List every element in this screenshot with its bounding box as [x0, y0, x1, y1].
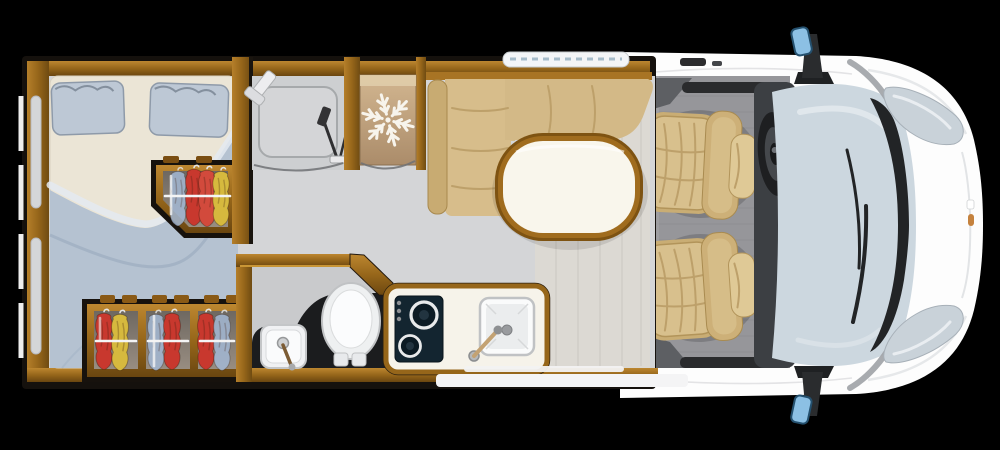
motorhome-floorplan — [0, 0, 1000, 450]
burner-small-center — [406, 342, 414, 350]
floorplan-canvas — [0, 0, 1000, 450]
dinette-top-trim — [426, 72, 652, 80]
roof-mount-icon — [680, 58, 706, 66]
washbasin-icon — [261, 325, 306, 371]
hinge-tab — [174, 295, 189, 303]
garment-red — [96, 309, 113, 369]
wall-divider — [232, 57, 251, 244]
hob-knobs — [397, 301, 401, 321]
hinge-tab — [100, 295, 115, 303]
fridge-side-panel — [416, 57, 426, 170]
amber-side-marker-icon — [968, 214, 974, 226]
pillow-left — [51, 81, 125, 135]
sink-icon — [480, 298, 534, 355]
fridge-top-band — [360, 75, 416, 86]
garment-red — [164, 309, 181, 369]
hinge-tab — [152, 295, 167, 303]
wall-shower-fridge — [344, 57, 360, 170]
hinge-tab — [204, 295, 219, 303]
washroom — [236, 254, 393, 382]
wardrobe-rear — [82, 295, 244, 382]
bench-back-cushion — [428, 80, 447, 214]
roof-mount-small-icon — [712, 61, 722, 66]
rear-window-bottom — [31, 238, 41, 354]
burner-large-center — [419, 310, 429, 320]
hinge-tab — [122, 295, 137, 303]
habitation-area — [21, 52, 688, 389]
pillow-right — [149, 83, 229, 138]
garment-red — [198, 309, 215, 369]
rear-window-top — [31, 96, 41, 208]
hinge-tab — [196, 156, 212, 163]
body-skirt — [436, 374, 688, 387]
washroom-wall-left — [236, 254, 252, 382]
front-marker-white — [967, 200, 974, 209]
vehicle-cab — [620, 26, 983, 424]
table-top — [503, 141, 635, 233]
entry-step-strip — [464, 366, 624, 372]
kitchen — [384, 284, 549, 374]
bench-front — [505, 79, 653, 140]
hinge-tab — [163, 156, 179, 163]
